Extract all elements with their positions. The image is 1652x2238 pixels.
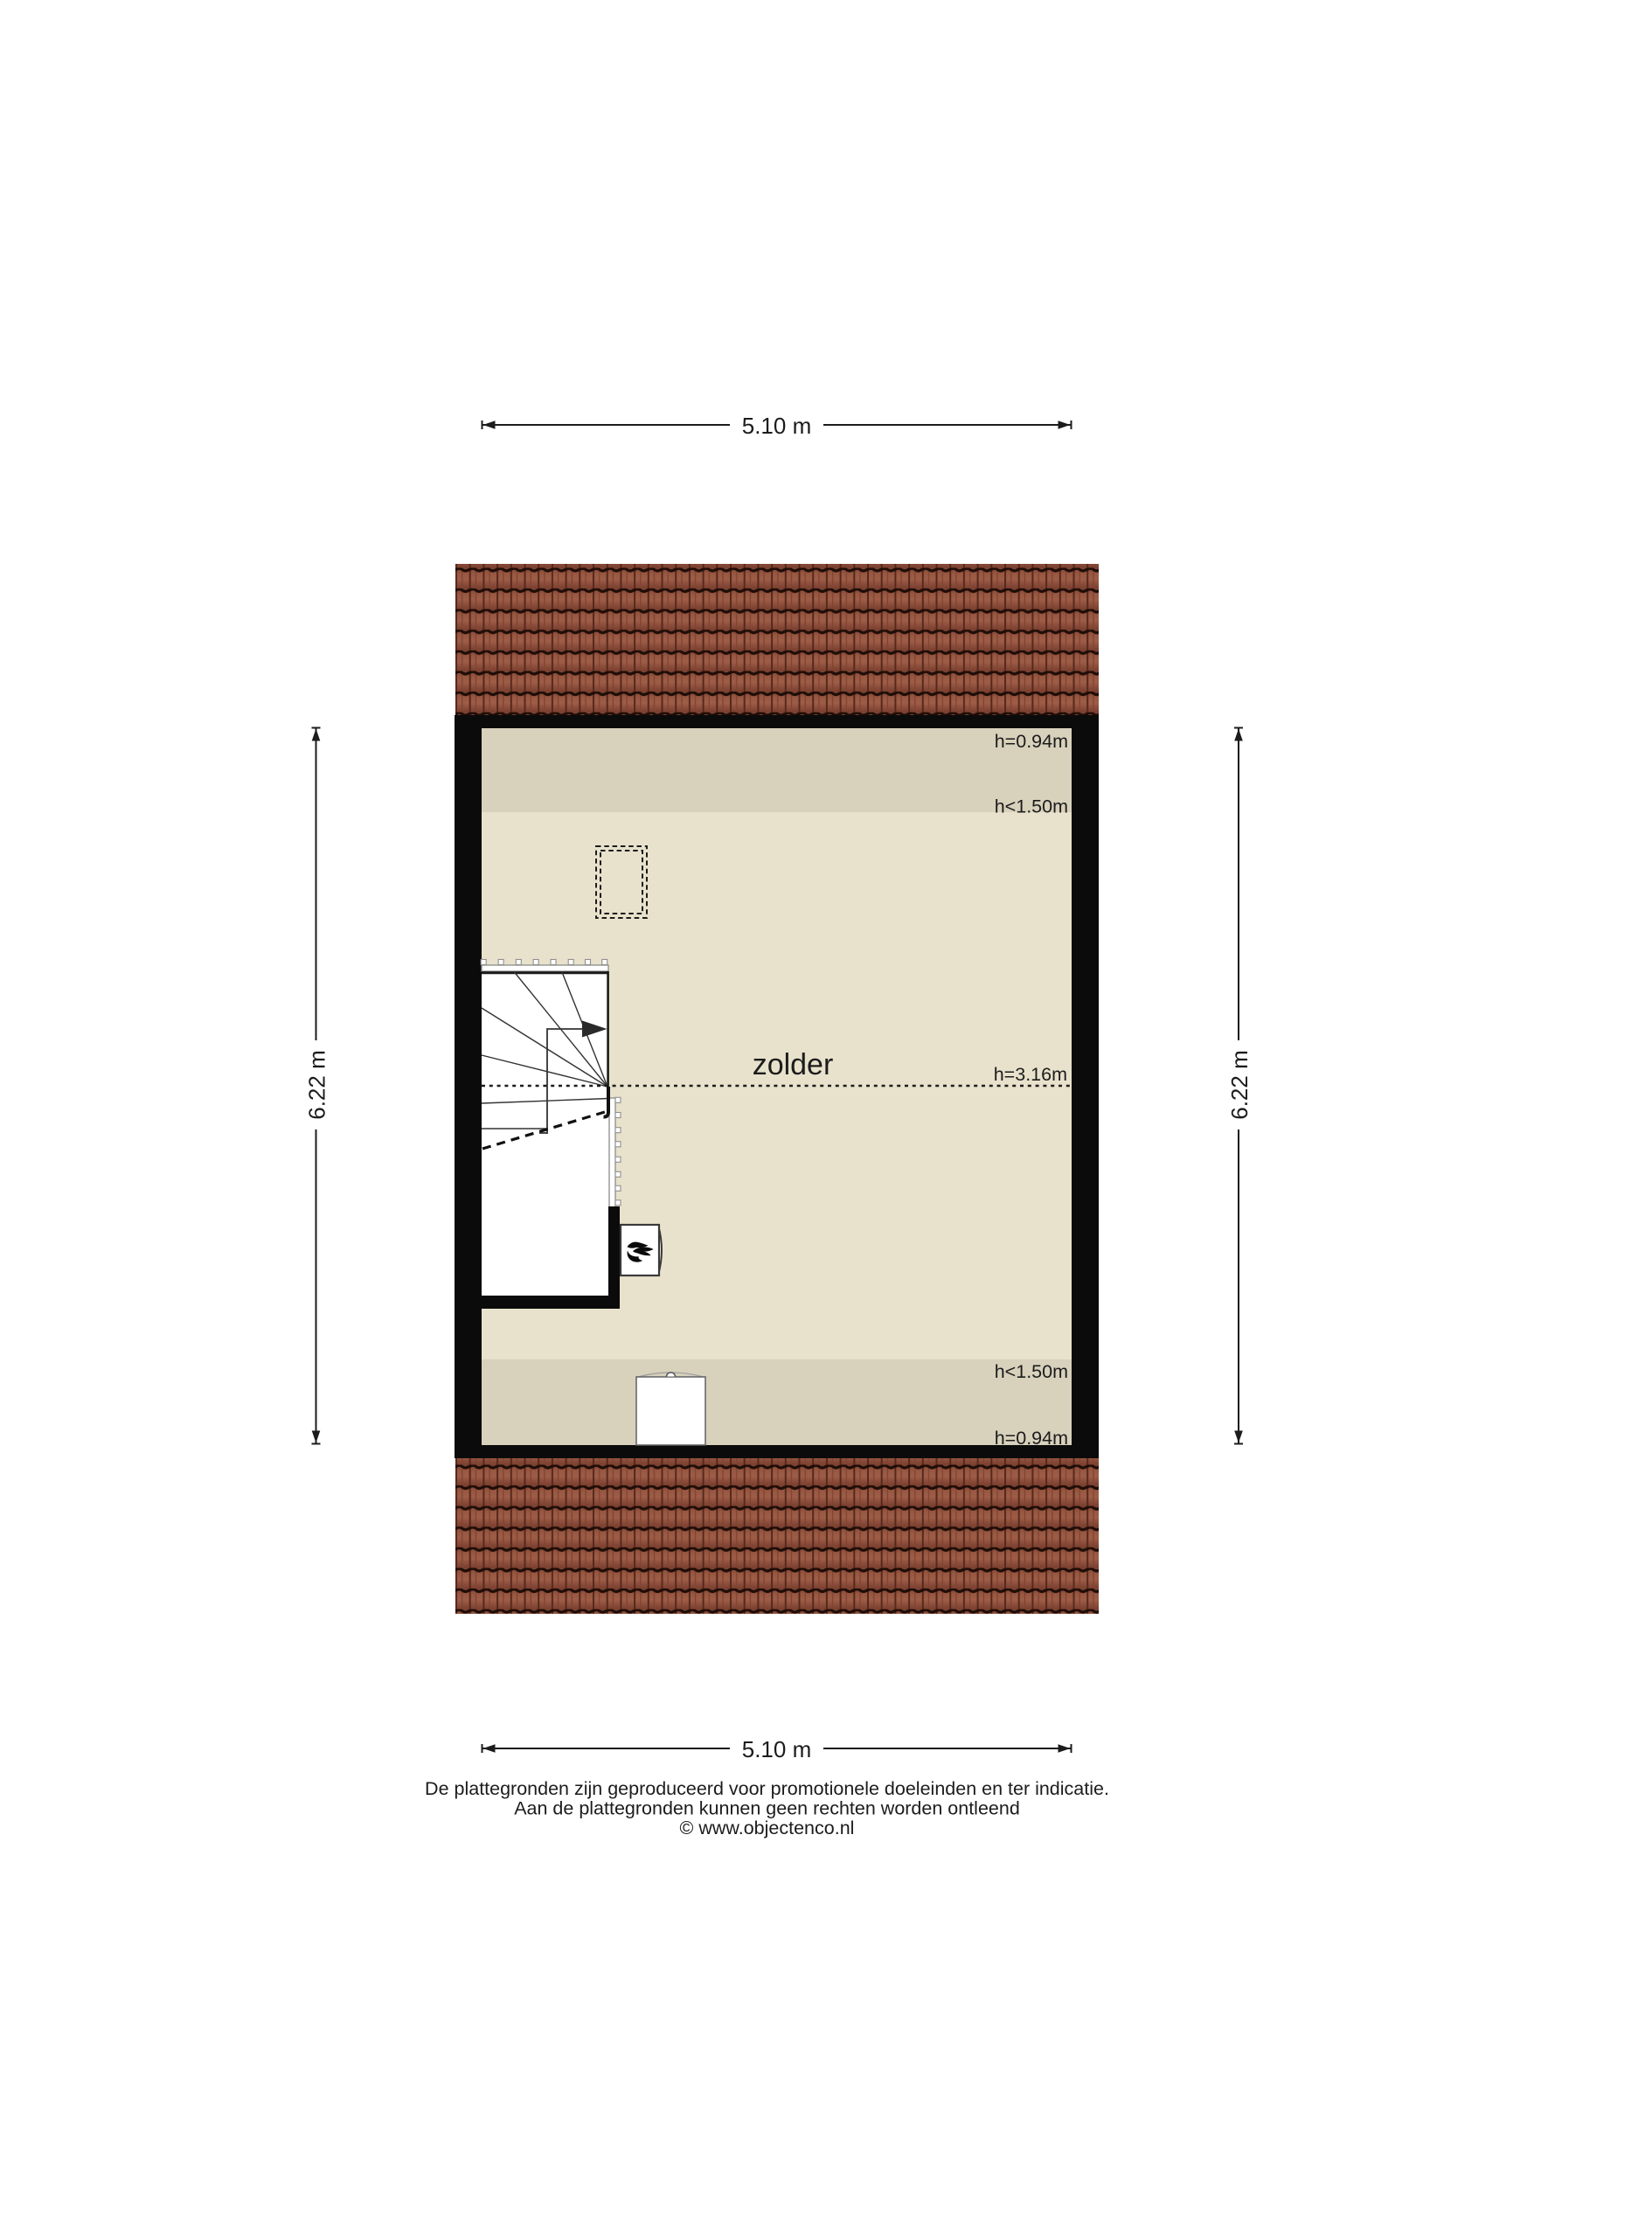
svg-text:6.22 m: 6.22 m [1226, 1050, 1253, 1120]
svg-text:h=0.94m: h=0.94m [995, 1428, 1068, 1449]
svg-text:zolder: zolder [753, 1048, 834, 1081]
svg-text:De plattegronden zijn geproduc: De plattegronden zijn geproduceerd voor … [425, 1778, 1109, 1799]
svg-text:h<1.50m: h<1.50m [995, 796, 1068, 817]
svg-text:5.10 m: 5.10 m [742, 413, 812, 439]
svg-text:Aan de plattegronden kunnen ge: Aan de plattegronden kunnen geen rechten… [514, 1798, 1020, 1819]
svg-text:h=0.94m: h=0.94m [995, 731, 1068, 752]
svg-text:h<1.50m: h<1.50m [995, 1361, 1068, 1382]
svg-text:h=3.16m: h=3.16m [994, 1064, 1067, 1085]
svg-text:5.10 m: 5.10 m [742, 1736, 812, 1762]
svg-text:© www.objectenco.nl: © www.objectenco.nl [680, 1818, 855, 1838]
svg-text:6.22 m: 6.22 m [304, 1050, 330, 1120]
